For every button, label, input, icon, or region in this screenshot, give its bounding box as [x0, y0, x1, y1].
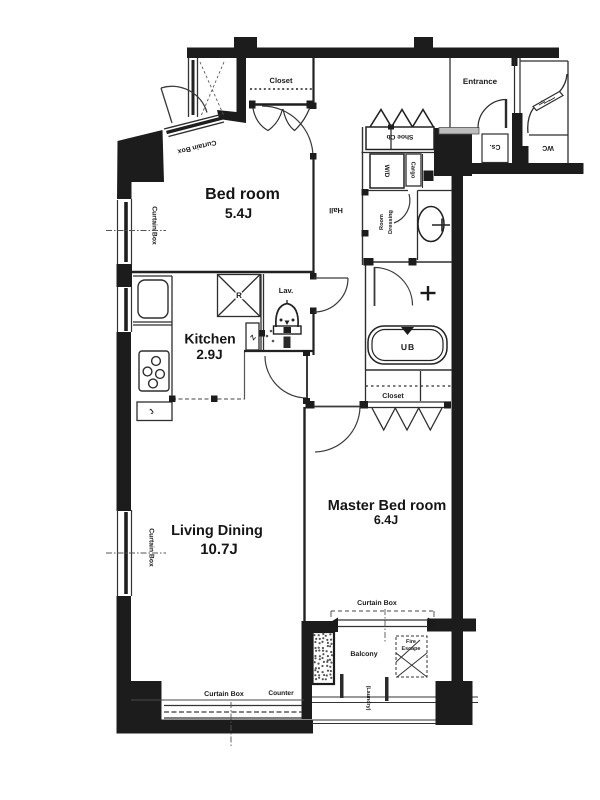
svg-text:Counter: Counter	[268, 690, 294, 697]
svg-text:WC: WC	[542, 144, 554, 151]
svg-text:Lav.: Lav.	[279, 286, 293, 295]
svg-text:6.4J: 6.4J	[374, 513, 398, 527]
svg-text:Curtain Box: Curtain Box	[148, 528, 155, 567]
svg-text:Closet: Closet	[382, 392, 404, 400]
svg-text:10.7J: 10.7J	[200, 541, 238, 558]
svg-text:Balcony: Balcony	[350, 650, 377, 658]
svg-text:Closet: Closet	[270, 76, 293, 85]
svg-text:Escape: Escape	[402, 646, 421, 652]
svg-text:R: R	[236, 291, 242, 300]
svg-text:Living Dining: Living Dining	[171, 523, 263, 539]
svg-text:Curtain Box: Curtain Box	[357, 599, 397, 607]
svg-text:Master Bed room: Master Bed room	[328, 498, 446, 514]
svg-text:Dressing: Dressing	[387, 209, 394, 234]
svg-text:Curtain Box: Curtain Box	[151, 206, 158, 245]
svg-text:2.9J: 2.9J	[196, 347, 222, 362]
svg-text:Cargo: Cargo	[410, 162, 417, 179]
svg-text:(Laundry): (Laundry)	[365, 686, 371, 711]
svg-text:UB: UB	[401, 342, 415, 352]
svg-text:W/D: W/D	[383, 165, 390, 178]
svg-text:Kitchen: Kitchen	[184, 331, 235, 347]
svg-text:5.4J: 5.4J	[225, 205, 252, 221]
svg-text:Bed room: Bed room	[205, 186, 280, 203]
svg-text:Curtain Box: Curtain Box	[204, 690, 244, 698]
svg-text:Room: Room	[379, 214, 385, 230]
svg-text:Hall: Hall	[329, 206, 343, 215]
svg-text:Fire: Fire	[406, 639, 416, 645]
svg-text:Cs.: Cs.	[490, 143, 501, 150]
svg-text:Entrance: Entrance	[463, 77, 498, 86]
svg-text:Shoe Cb: Shoe Cb	[387, 133, 414, 140]
